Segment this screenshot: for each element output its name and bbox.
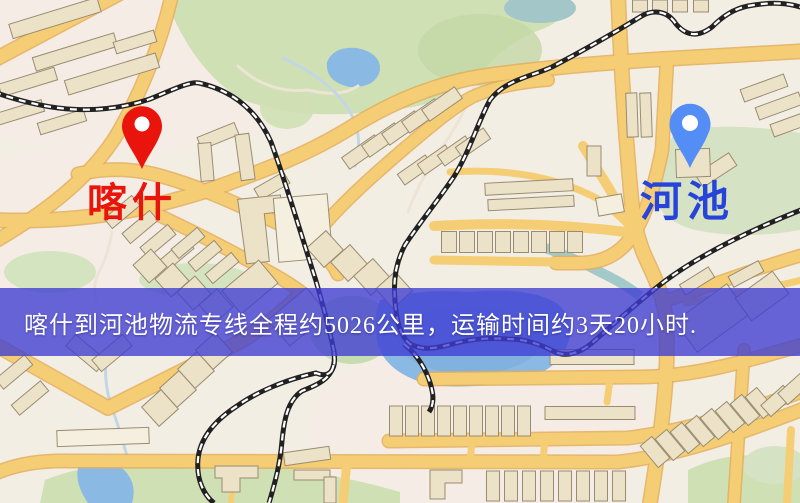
destination-label: 河池 (640, 179, 734, 226)
route-info-banner: 喀什到河池物流专线全程约5026公里，运输时间约3天20小时. (0, 288, 800, 356)
destination-pin-hole (682, 115, 698, 131)
origin-pin-hole (135, 117, 150, 132)
origin-label: 喀什 (87, 180, 177, 225)
map-canvas: 喀什 河池 (0, 0, 800, 503)
map-screenshot: 喀什 河池 喀什到河池物流专线全程约5026公里，运输时间约3天20小时. (0, 0, 800, 503)
route-info-text: 喀什到河池物流专线全程约5026公里，运输时间约3天20小时. (24, 305, 697, 340)
